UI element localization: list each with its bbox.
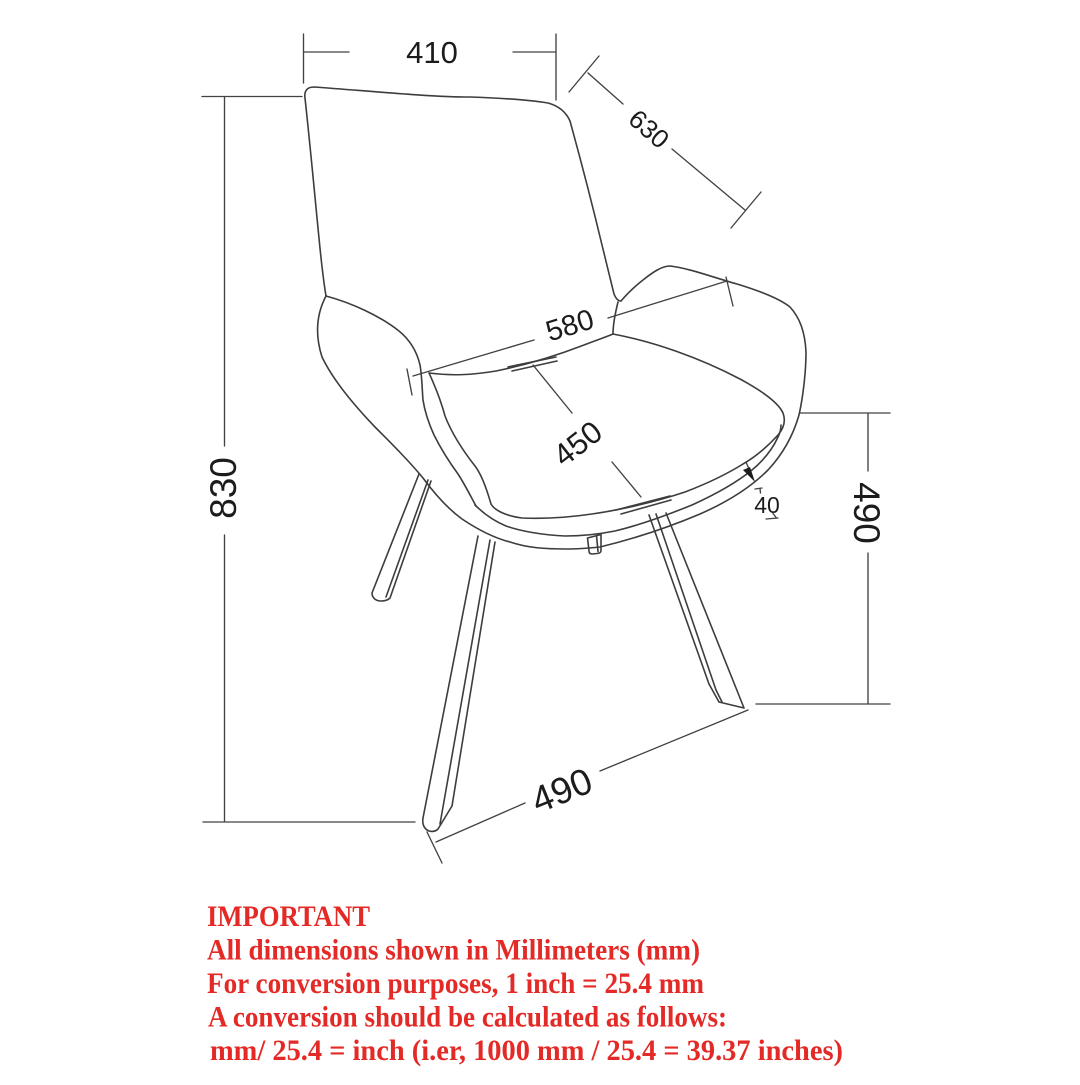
svg-text:A conversion should be calcula: A conversion should be calculated as fol… <box>208 1001 727 1034</box>
svg-text:40: 40 <box>754 492 780 518</box>
svg-text:830: 830 <box>203 457 244 519</box>
svg-text:mm/ 25.4 = inch (i.er, 1000 mm: mm/ 25.4 = inch (i.er, 1000 mm / 25.4 = … <box>210 1034 843 1067</box>
svg-text:IMPORTANT: IMPORTANT <box>207 900 370 933</box>
svg-text:490: 490 <box>846 482 887 544</box>
svg-text:For conversion purposes, 1 inc: For conversion purposes, 1 inch = 25.4 m… <box>207 967 704 1000</box>
svg-text:410: 410 <box>406 35 458 70</box>
svg-text:All dimensions shown in Millim: All dimensions shown in Millimeters (mm) <box>207 934 700 967</box>
